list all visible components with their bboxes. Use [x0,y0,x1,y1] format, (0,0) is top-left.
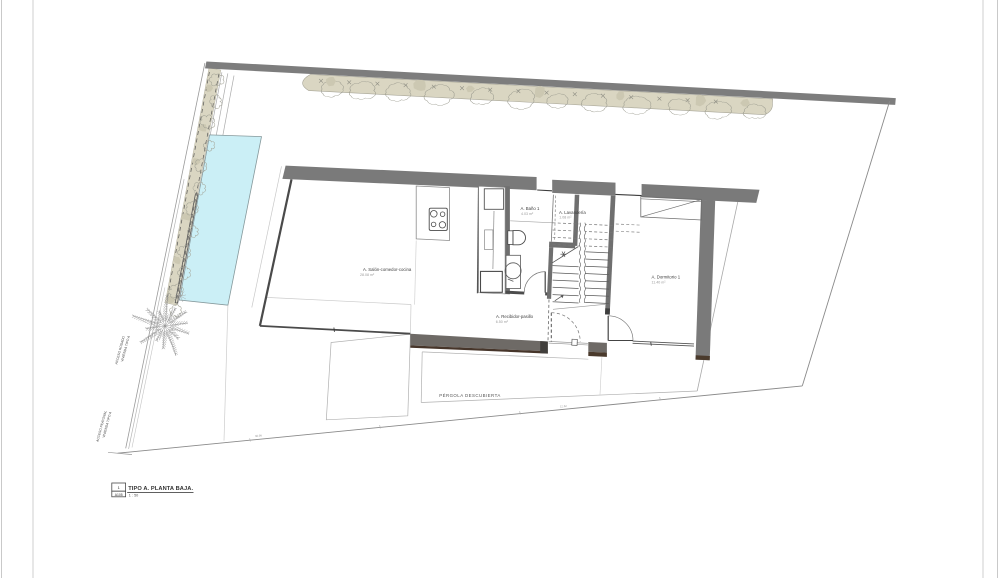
svg-text:PÉRGOLA DESCUBIERTA: PÉRGOLA DESCUBIERTA [439,393,501,398]
svg-text:A. Dormitorio 1: A. Dormitorio 1 [652,274,681,279]
svg-text:A. Recibidor-pasillo: A. Recibidor-pasillo [496,314,534,319]
svg-text:1 : 50: 1 : 50 [129,494,139,498]
svg-text:A. Baño 1: A. Baño 1 [521,206,540,211]
svg-text:38.96: 38.96 [255,433,263,438]
svg-text:4.03 m²: 4.03 m² [521,212,534,216]
svg-text:A. Lavandería: A. Lavandería [559,210,586,215]
svg-text:6.50 m²: 6.50 m² [496,320,509,324]
svg-text:A105: A105 [115,493,123,497]
svg-text:A. Salón-comedor-cocina: A. Salón-comedor-cocina [363,267,412,272]
svg-text:TIPO A. PLANTA BAJA.: TIPO A. PLANTA BAJA. [128,486,193,492]
svg-text:11.40 m²: 11.40 m² [652,280,667,284]
svg-text:28.08 m²: 28.08 m² [360,273,375,277]
svg-text:12.62: 12.62 [560,404,568,409]
svg-text:1.08 m²: 1.08 m² [559,216,572,220]
